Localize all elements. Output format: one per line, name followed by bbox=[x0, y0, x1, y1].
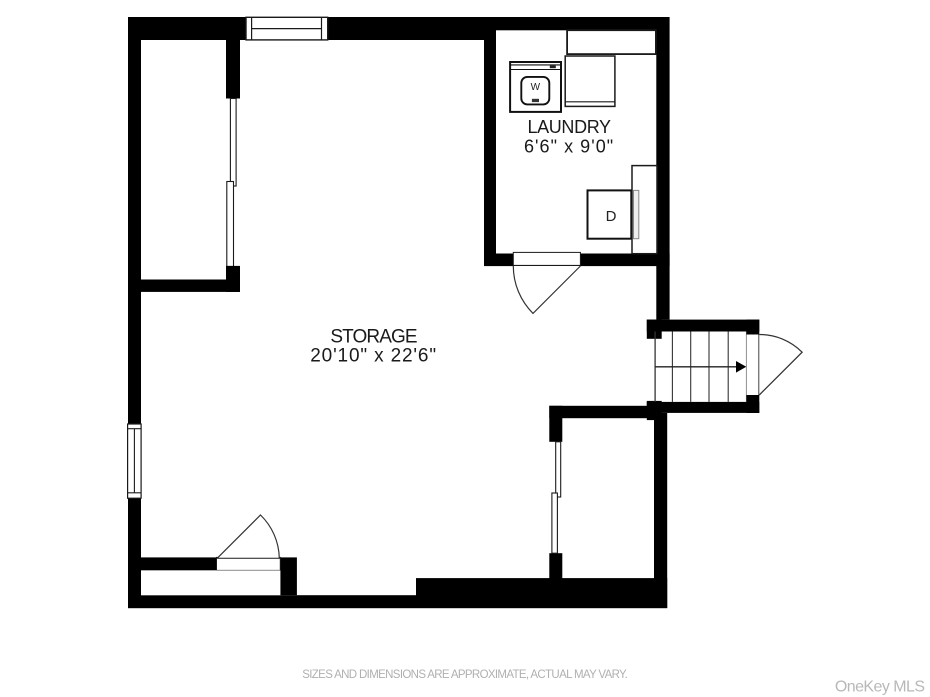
svg-text:6'6" x 9'0": 6'6" x 9'0" bbox=[524, 136, 614, 156]
svg-text:LAUNDRY: LAUNDRY bbox=[527, 117, 611, 137]
svg-text:20'10" x 22'6": 20'10" x 22'6" bbox=[310, 346, 437, 367]
svg-text:OneKey MLS: OneKey MLS bbox=[835, 679, 925, 696]
svg-text:SIZES AND DIMENSIONS ARE APPRO: SIZES AND DIMENSIONS ARE APPROXIMATE, AC… bbox=[302, 669, 627, 681]
svg-text:W: W bbox=[531, 82, 541, 93]
svg-text:STORAGE: STORAGE bbox=[330, 326, 416, 347]
svg-text:D: D bbox=[606, 208, 617, 225]
